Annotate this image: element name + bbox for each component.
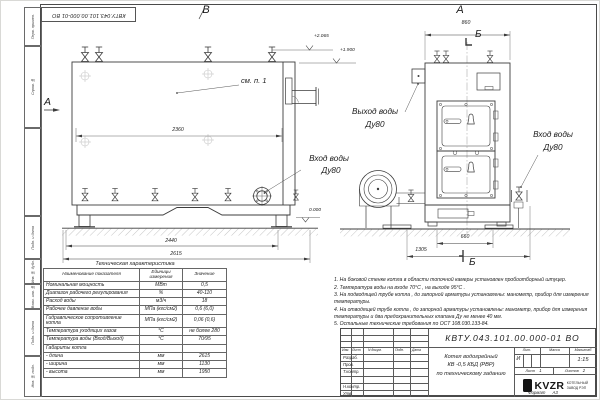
spec-unit	[140, 344, 183, 352]
spec-value: 40-110	[183, 289, 227, 297]
spec-name: Диапазон рабочего регулирования	[44, 289, 140, 297]
spec-unit: °С	[140, 336, 183, 344]
inlet-label-front-line1: Вход воды	[309, 155, 349, 163]
margin-label: Перв. примен.	[31, 14, 35, 39]
top-corner-stamp: КВТУ.043.101.00.000-01 ВО	[41, 7, 136, 22]
spec-row: Номинальная мощностьМВт0,5	[44, 281, 227, 289]
spec-name: Гидравлическое сопротивление котла	[44, 314, 140, 328]
spec-name: - высота	[44, 369, 140, 377]
logo-subtitle-line2: ЗАВОД РЭП	[567, 386, 588, 390]
spec-header-value: Значение	[183, 269, 227, 282]
sheets-label: Листов	[565, 369, 579, 373]
spec-row: Гидравлическое сопротивление котлаМПа (к…	[44, 314, 227, 328]
spec-row: Диапазон рабочего регулирования%40-110	[44, 289, 227, 297]
spec-header-name: Наименование показателя	[44, 269, 140, 282]
spec-unit: МПа (кгс/см2)	[140, 314, 183, 328]
spec-row: Температура уходящих газов°Сне более 280	[44, 328, 227, 336]
rev-header-list: Лист	[352, 349, 361, 352]
spec-unit: м3/ч	[140, 298, 183, 306]
margin-cell-inv-dubl: Инв. № дубл.	[24, 258, 42, 285]
spec-row: - ширинамм1130	[44, 361, 227, 369]
role-razrab: Разраб.	[343, 356, 358, 360]
margin-cell-podp-data-2: Подп. и дата	[24, 308, 42, 357]
margin-label: Справ. №	[31, 78, 35, 95]
drawing-sheet: Перв. примен. Справ. № Подп. и дата Инв.…	[0, 0, 600, 400]
scale-header: Масштаб	[575, 349, 592, 353]
spec-name: Габариты котла	[44, 344, 140, 352]
rev-header-date: Дата	[412, 349, 421, 352]
spec-row: Температура воды (Вход/Выход)°С70/95	[44, 336, 227, 344]
lit-header: Лит.	[523, 349, 531, 353]
note-2: 2. Температура воды на входе 70°С , на в…	[334, 285, 590, 292]
role-utv: Утв.	[343, 392, 352, 396]
spec-unit: мм	[140, 369, 183, 377]
spec-value: 70/95	[183, 336, 227, 344]
product-name-line3: по техническому заданию	[436, 370, 505, 378]
rev-header-doc: N докум.	[368, 349, 382, 352]
side-view-label: А	[456, 5, 463, 16]
see-note-callout: см. п. 1	[241, 77, 267, 85]
margin-cell-inv-podl: Инв. № подл.	[24, 355, 42, 397]
spec-value: 1950	[183, 369, 227, 377]
dim-2615: 2615	[170, 252, 182, 257]
spec-unit: МПа (кгс/см2)	[140, 306, 183, 314]
title-block: Изм. Лист N докум. Подп. Дата Разраб. Пр…	[340, 328, 596, 396]
spec-row: - длинамм2615	[44, 352, 227, 360]
scale-value: 1:15	[577, 358, 588, 364]
elevation-mark-zero: 0.000	[309, 209, 321, 214]
margin-label: Подп. и дата	[31, 321, 35, 345]
spec-value: 18	[183, 298, 227, 306]
spec-row: Рабочее давление водыМПа (кгс/см2)0,6 (6…	[44, 306, 227, 314]
lit-value: И	[516, 357, 520, 363]
inlet-label-side-line1: Вход воды	[533, 131, 573, 139]
format-note: Формат А3	[528, 390, 558, 395]
document-designation: КВТУ.043.101.00.000-01 ВО	[428, 329, 597, 347]
note-4: 4. На отводящей трубе котла , до запорно…	[334, 307, 590, 320]
note-1: 1. На боковой стенке котла в области топ…	[334, 277, 590, 284]
technical-notes: 1. На боковой стенке котла в области топ…	[334, 277, 590, 329]
product-name-line2: КВ -0,5 КБД (РВР)	[447, 361, 494, 369]
spec-value: не более 280	[183, 328, 227, 336]
margin-label: Инв. № дубл.	[31, 260, 35, 283]
margin-cell-podp-data-1: Подп. и дата	[24, 215, 42, 260]
spec-row: Расход водым3/ч18	[44, 298, 227, 306]
sheets-total: Листов 2	[553, 367, 597, 374]
spec-unit: мм	[140, 361, 183, 369]
dim-2440: 2440	[165, 239, 177, 244]
margin-cell-sprav-n: Справ. №	[24, 45, 42, 129]
elevation-mark-2065: +2.065	[314, 35, 329, 40]
spec-name: Рабочее давление воды	[44, 306, 140, 314]
spec-unit: МВт	[140, 281, 183, 289]
front-view-label: В	[202, 5, 209, 16]
view-direction-label-a: А	[44, 97, 51, 108]
dim-2360: 2360	[172, 128, 184, 133]
margin-cell-perv-primen: Перв. примен.	[24, 7, 42, 47]
margin-cell-vzam-inv: Взам. инв. №	[24, 283, 42, 310]
spec-name: Номинальная мощность	[44, 281, 140, 289]
dim-860: 860	[462, 21, 471, 26]
spec-value	[183, 344, 227, 352]
note-3: 3. На подводящей трубе котла , до запорн…	[334, 292, 590, 305]
margin-label: Подп. и дата	[31, 226, 35, 250]
spec-name: - ширина	[44, 361, 140, 369]
sheet-label: Лист	[525, 369, 535, 373]
rev-header-sign: Подп.	[395, 349, 404, 352]
format-value: А3	[552, 390, 557, 395]
margin-label: Взам. инв. №	[31, 285, 35, 308]
spec-header-unit: Единицы измерения	[140, 269, 183, 282]
spec-value: 1130	[183, 361, 227, 369]
elevation-mark-1900: +1.900	[340, 49, 355, 54]
sheet-value: 1	[539, 368, 541, 373]
top-corner-designation: КВТУ.043.101.00.000-01 ВО	[52, 12, 126, 18]
spec-row: - высотамм1950	[44, 369, 227, 377]
spec-row: Габариты котла	[44, 344, 227, 352]
inlet-label-front-line2: Ду80	[321, 167, 340, 175]
role-tkontr: Т.контр.	[343, 370, 360, 374]
mass-header: Масса	[549, 349, 560, 353]
spec-value: 0,06 (0,6)	[183, 314, 227, 328]
inlet-label-side-line2: Ду80	[543, 144, 562, 152]
spec-name: - длина	[44, 352, 140, 360]
spec-name: Температура воды (Вход/Выход)	[44, 336, 140, 344]
spec-unit: °С	[140, 328, 183, 336]
margin-cell-empty	[24, 127, 42, 217]
dim-660: 660	[461, 235, 470, 240]
rev-header-izm: Изм.	[342, 349, 349, 352]
spec-value: 0,5	[183, 281, 227, 289]
spec-value: 2615	[183, 352, 227, 360]
dim-1305: 1305	[415, 248, 427, 253]
section-label-b-top: Б	[475, 30, 482, 40]
spec-table-title: Техническая характеристика	[43, 261, 227, 267]
spec-table-block: Техническая характеристика Наименование …	[43, 261, 227, 378]
margin-label: Инв. № подл.	[31, 364, 35, 387]
spec-table: Наименование показателя Единицы измерени…	[43, 268, 227, 378]
spec-name: Расход воды	[44, 298, 140, 306]
spec-header-row: Наименование показателя Единицы измерени…	[44, 269, 227, 282]
section-label-b-bottom: Б	[469, 258, 476, 268]
format-label: Формат	[528, 390, 545, 395]
role-nkontr: Н.контр.	[343, 385, 360, 389]
spec-unit: %	[140, 289, 183, 297]
outlet-label-line1: Выход воды	[352, 108, 398, 116]
sheet-number: Лист 1	[514, 367, 553, 374]
spec-unit: мм	[140, 352, 183, 360]
role-prov: Пров.	[343, 363, 354, 367]
kvzr-logo-subtitle: КОТЕЛЬНЫЙ ЗАВОД РЭП	[567, 381, 588, 390]
outlet-label-line2: Ду80	[365, 121, 384, 129]
product-name-line1: Котел водогрейный	[444, 353, 497, 361]
product-name: Котел водогрейный КВ -0,5 КБД (РВР) по т…	[428, 347, 514, 397]
spec-value: 0,6 (6,0)	[183, 306, 227, 314]
spec-name: Температура уходящих газов	[44, 328, 140, 336]
sheets-value: 2	[583, 368, 585, 373]
